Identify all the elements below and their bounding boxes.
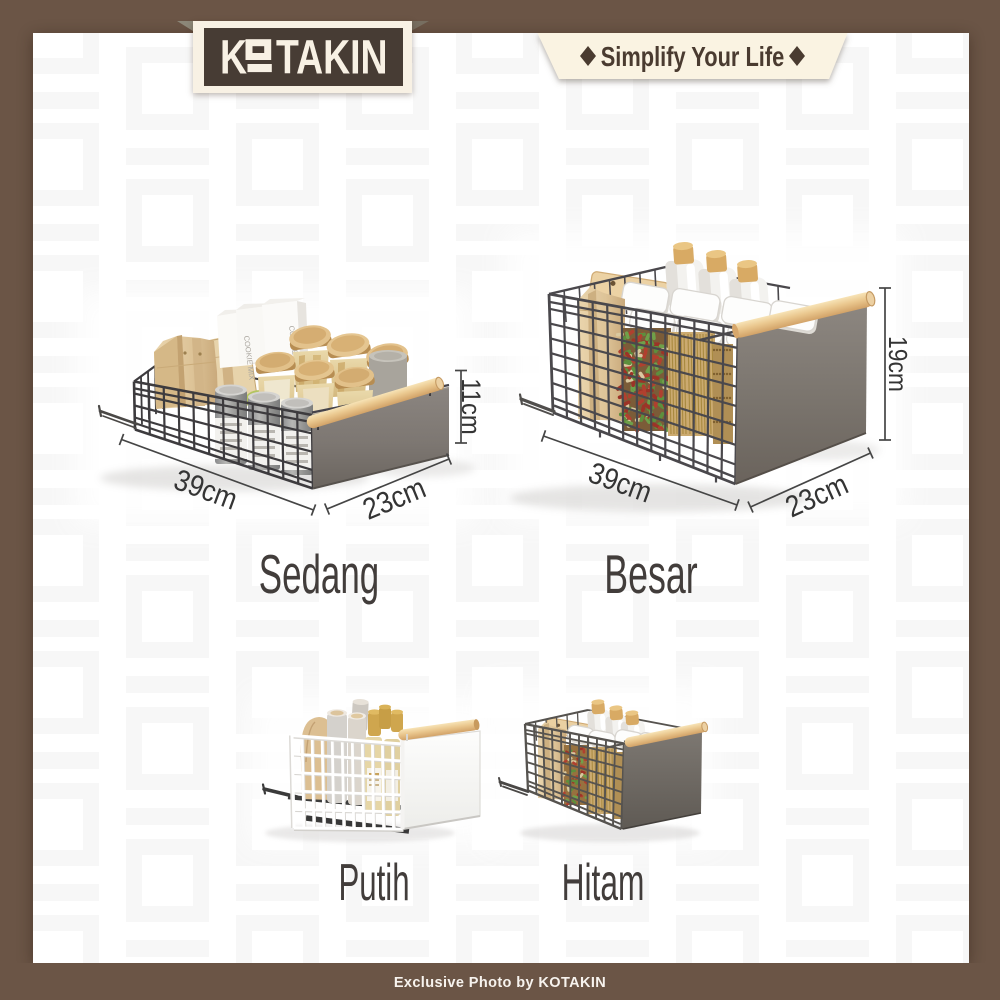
svg-text:TAKIN: TAKIN xyxy=(276,31,388,85)
svg-text:Simplify Your Life: Simplify Your Life xyxy=(601,41,785,72)
svg-text:K: K xyxy=(220,31,247,85)
svg-text:19cm: 19cm xyxy=(883,336,912,392)
svg-text:11cm: 11cm xyxy=(456,378,486,434)
